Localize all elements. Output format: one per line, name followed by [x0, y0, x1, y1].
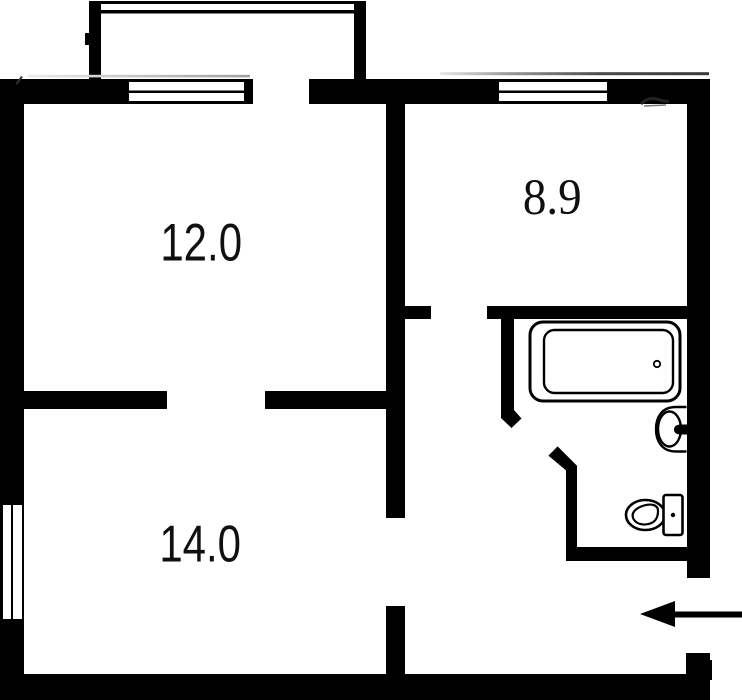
svg-text:14.0: 14.0: [159, 514, 241, 572]
svg-text:8.9: 8.9: [523, 168, 582, 225]
svg-text:12.0: 12.0: [160, 214, 242, 273]
